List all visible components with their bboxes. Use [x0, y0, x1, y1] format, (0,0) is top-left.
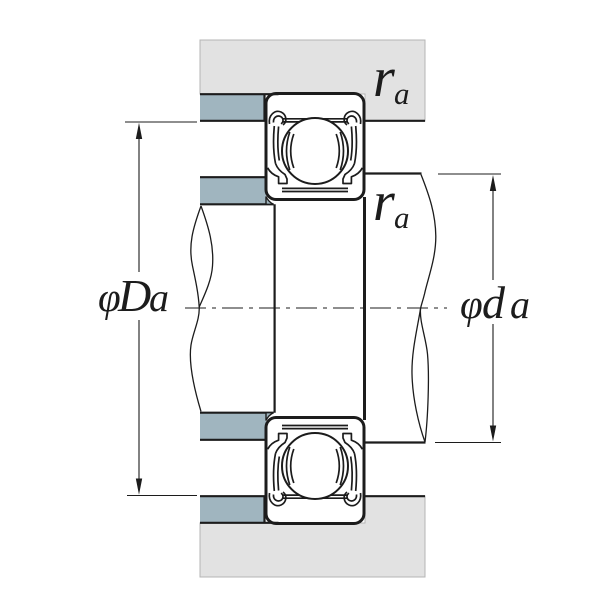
bearing-cross-section	[266, 94, 364, 200]
label-shaft-fillet: r a	[373, 171, 410, 235]
dimension-shaft-abutment: φ d a	[435, 174, 543, 443]
shaft-shoulder-bottom	[200, 413, 266, 440]
shaft-abutment-dia-sub: a	[510, 282, 530, 327]
housing-abutment-dia-letter: D	[117, 270, 151, 321]
housing-shoulder-top	[200, 94, 264, 121]
bearing-cross-section-bottom	[266, 418, 364, 524]
drawing-canvas: φ D a φ d a r a r a	[0, 0, 600, 600]
break-line-left	[190, 206, 212, 412]
housing-shoulder-bottom	[200, 496, 264, 523]
shaft-abutment-dia-phi: φ	[460, 281, 483, 327]
shaft-fillet-sub: a	[394, 200, 410, 235]
shaft-abutment-dia-letter: d	[482, 277, 506, 328]
shaft-fillet-symbol: r	[373, 171, 395, 233]
bearing-ball	[282, 118, 348, 184]
dimension-housing-abutment: φ D a	[94, 122, 197, 496]
technical-drawing-svg: φ D a φ d a r a r a	[0, 0, 600, 600]
housing-fillet-symbol: r	[373, 47, 395, 109]
housing-fillet-sub: a	[394, 76, 410, 111]
housing-abutment-dia-sub: a	[149, 275, 169, 320]
shaft-shoulder-top	[200, 177, 266, 204]
